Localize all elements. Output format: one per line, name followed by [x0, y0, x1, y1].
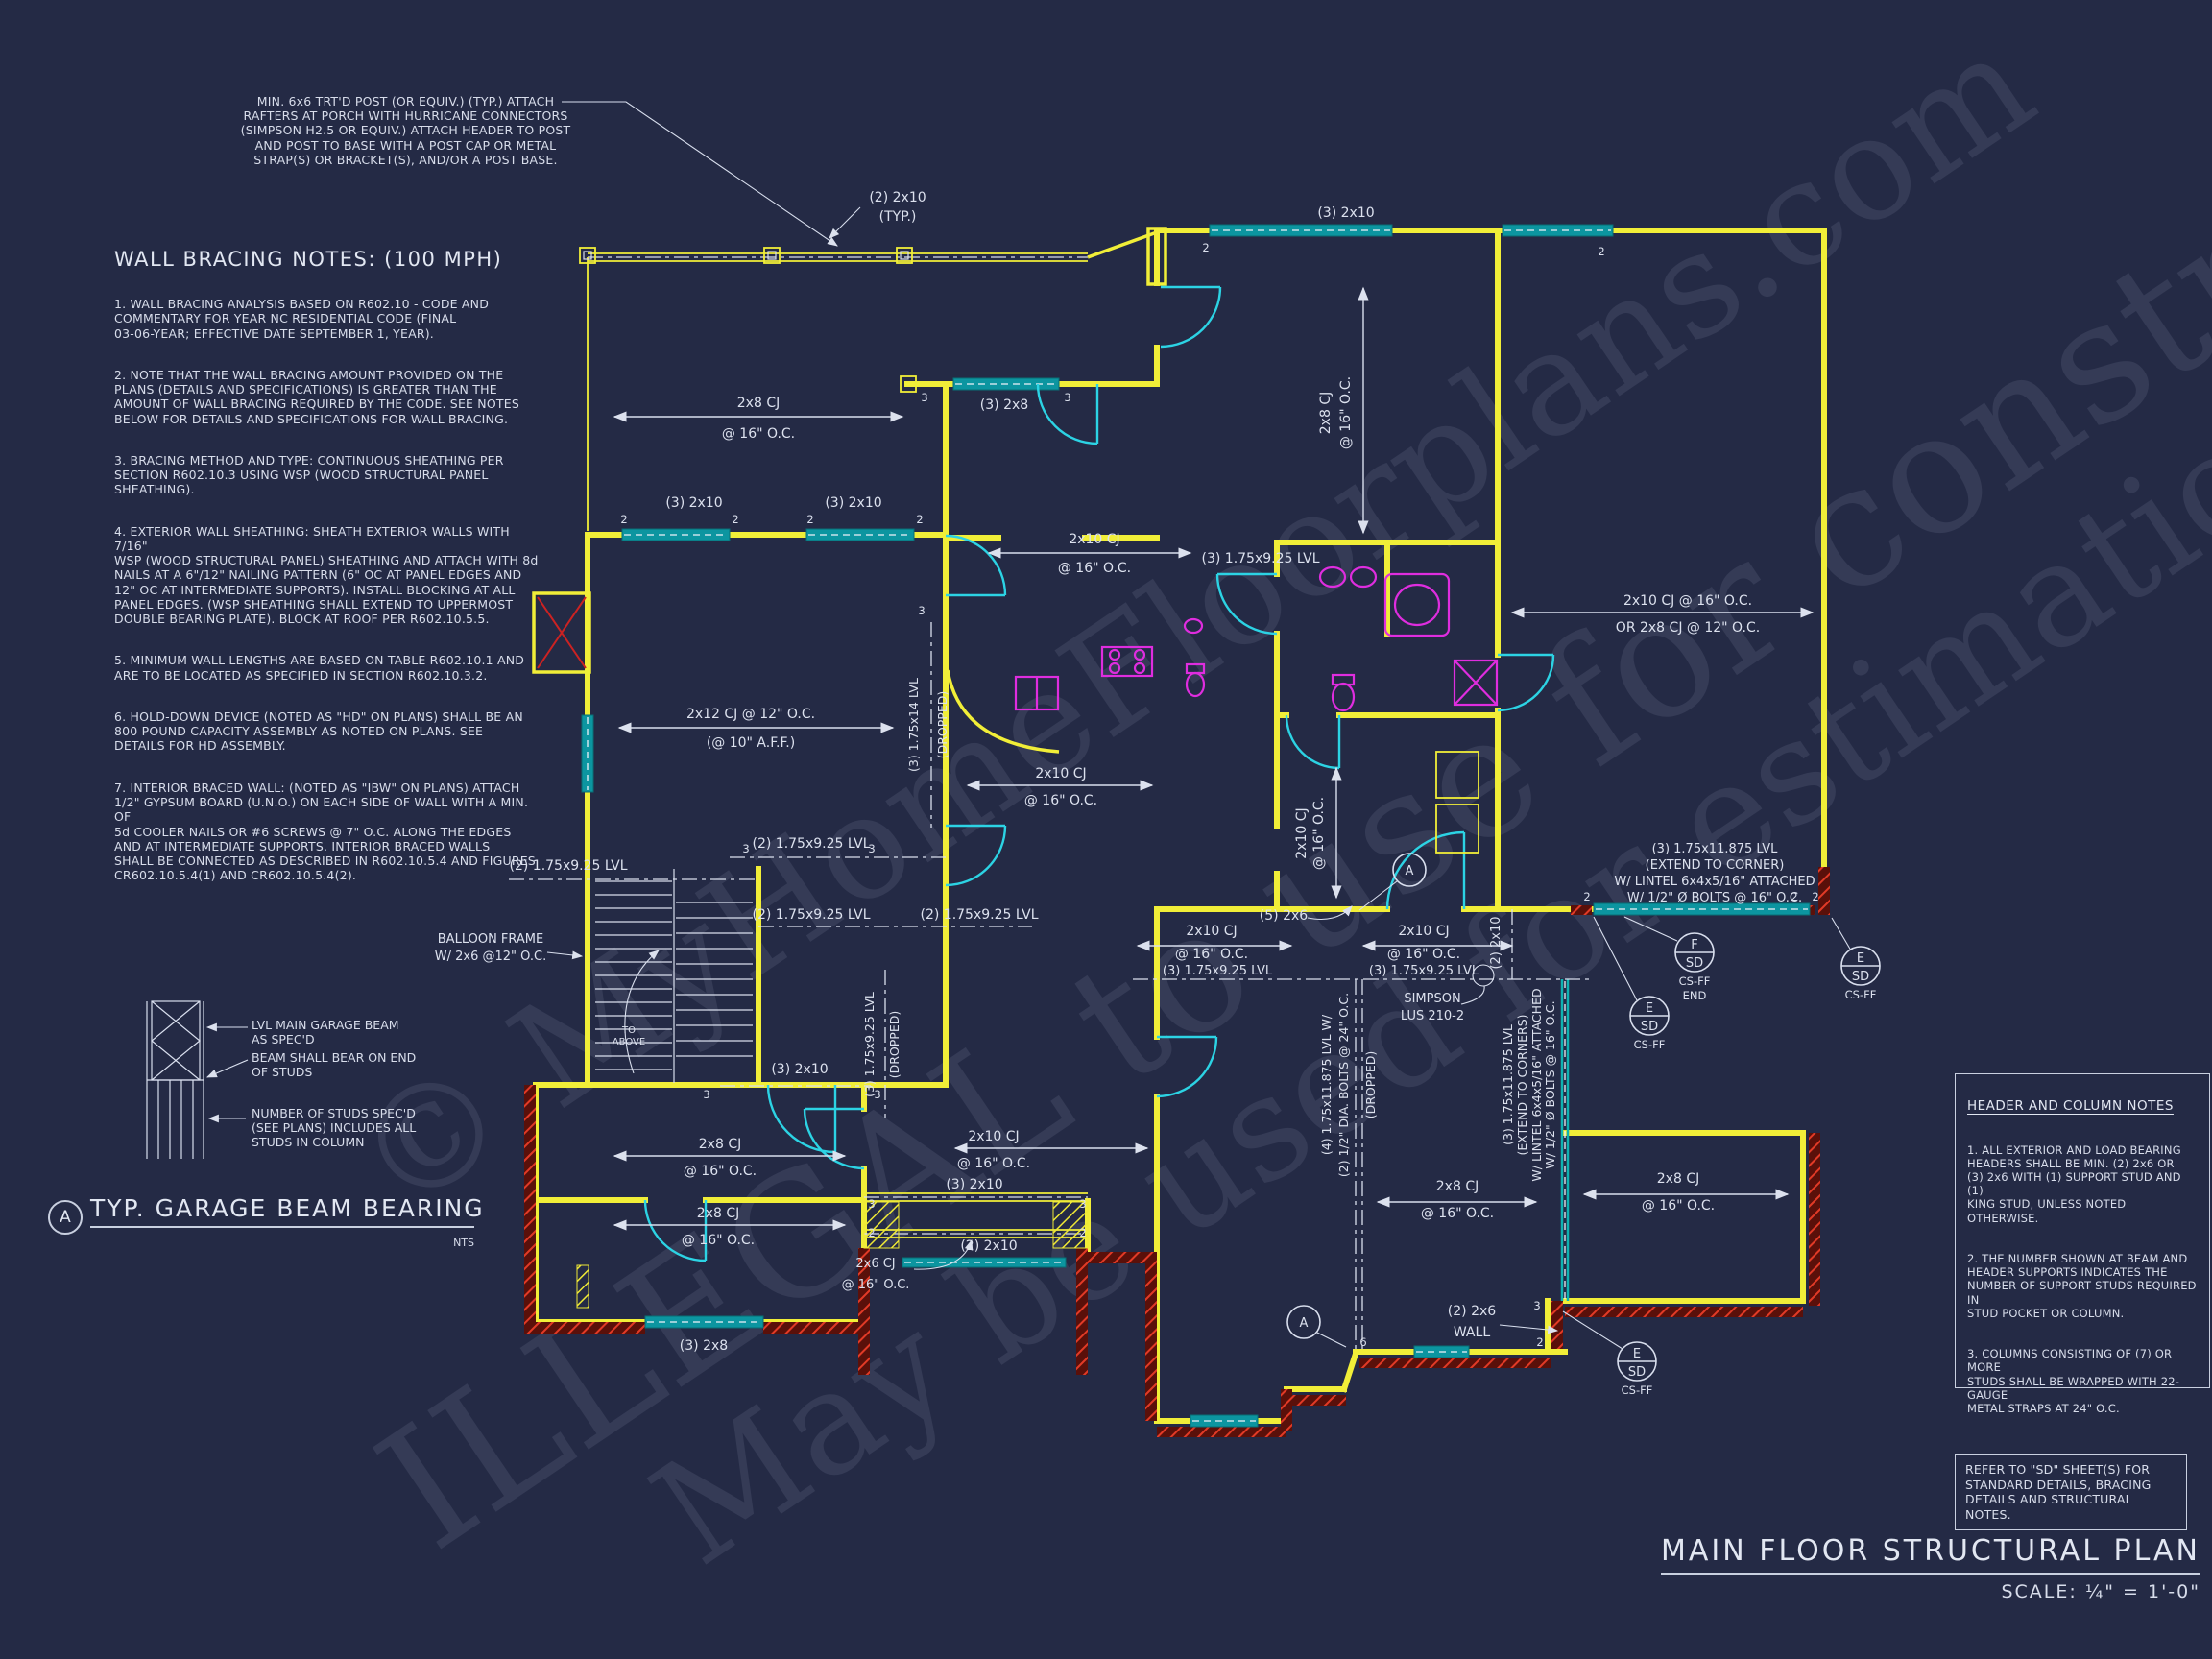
- stud-count: 2: [916, 513, 923, 526]
- plan-label: (2) 2x10: [1489, 916, 1503, 969]
- plan-label: BALLOON FRAME: [438, 932, 543, 947]
- plan-label: W/ LINTEL 6x4x5/16" ATTACHED: [1614, 875, 1815, 889]
- callout-sheet: SD: [1852, 970, 1869, 984]
- plan-label: (2) 1.75x9.25 LVL: [753, 907, 871, 923]
- plan-label: 2x10 CJ: [1398, 924, 1449, 939]
- plan-label: @ 16" O.C.: [1387, 947, 1460, 962]
- callout-letter: E: [1633, 1347, 1641, 1361]
- plan-label: (2) 1/2" DIA. BOLTS @ 24" O.C.: [1336, 993, 1351, 1177]
- callout-sheet: SD: [1686, 956, 1703, 971]
- plan-label: (3) 1.75x9.25 LVL: [862, 992, 877, 1097]
- plan-label: (DROPPED): [1363, 1051, 1378, 1119]
- plan-label: LUS 210-2: [1401, 1009, 1464, 1023]
- plumbing-fixtures: [948, 567, 1497, 853]
- garage-beam-detail-drawing: [147, 1001, 248, 1159]
- plan-label: (3) 1.75x9.25 LVL: [1202, 551, 1320, 566]
- stud-count: 2: [806, 513, 813, 526]
- plan-label: WALL: [1454, 1325, 1490, 1340]
- plan-label: (3) 1.75x9.25 LVL: [1163, 964, 1273, 978]
- plan-label: (3) 2x10: [946, 1177, 1002, 1192]
- callout-sheet: SD: [1628, 1365, 1646, 1380]
- stud-count: 3: [1079, 1197, 1086, 1211]
- plan-label: 2x8 CJ: [699, 1137, 741, 1152]
- stud-count: 3: [1064, 391, 1070, 404]
- plan-label: (3) 1.75x11.875 LVL: [1652, 842, 1779, 856]
- leader-lines: [547, 102, 1851, 1349]
- callout-tag: CS-FF: [1845, 988, 1877, 1001]
- callout-letter: F: [1691, 938, 1697, 952]
- plan-label: @ 16" O.C.: [1338, 376, 1354, 449]
- plan-label: (2) 1.75x9.25 LVL: [921, 907, 1039, 923]
- plan-label: W/ 2x6 @12" O.C.: [435, 950, 546, 964]
- plan-label: (3) 2x8: [980, 397, 1028, 413]
- callout-tag: END: [1683, 989, 1707, 1002]
- stud-count: 3: [874, 1088, 880, 1101]
- plan-label: @ 16" O.C.: [842, 1278, 910, 1292]
- callout-tag: CS-FF: [1634, 1038, 1666, 1051]
- plan-label: (3) 2x8: [680, 1338, 728, 1354]
- plan-label: 2x10 CJ @ 16" O.C.: [1623, 593, 1752, 609]
- stud-count: 3: [1533, 1299, 1540, 1312]
- beam-lines: [509, 622, 1594, 1349]
- callout-letter: A: [1406, 864, 1414, 878]
- stud-count: 3: [921, 391, 927, 404]
- plan-label: (3) 2x10: [771, 1062, 828, 1077]
- stud-count: 2: [732, 513, 738, 526]
- plan-label: 2x10 CJ: [1186, 924, 1237, 939]
- stud-count: 3: [918, 604, 925, 617]
- plan-label: (4) 1.75x11.875 LVL W/: [1319, 1014, 1334, 1155]
- callout-letter: A: [1300, 1316, 1309, 1331]
- plan-label: (2) 2x6: [1448, 1304, 1496, 1319]
- stud-count: 2: [868, 1226, 875, 1239]
- stud-count: 2: [1202, 241, 1209, 254]
- callout-letter: E: [1857, 951, 1864, 966]
- floor-plan-svg: TO ABOVE: [0, 0, 2212, 1659]
- plan-label: 2x8 CJ: [737, 396, 780, 411]
- plan-label: @ 16" O.C.: [682, 1233, 755, 1248]
- plan-label: (2) 1.75x9.25 LVL: [753, 836, 871, 852]
- callout-tag: CS-FF: [1622, 1383, 1653, 1397]
- stud-count: 2: [1079, 1226, 1086, 1239]
- plan-label: (2) 1.75x9.25 LVL: [510, 858, 628, 874]
- stud-count: 3: [703, 1088, 709, 1101]
- stud-count: 2: [1583, 890, 1590, 903]
- stud-count: 3: [868, 842, 875, 855]
- plan-label: @ 16" O.C.: [1024, 793, 1097, 808]
- plan-label: W/ LINTEL 6x4x5/16" ATTACHED: [1529, 988, 1544, 1181]
- plan-label: 2x12 CJ @ 12" O.C.: [686, 707, 815, 722]
- callout-sheet: SD: [1641, 1020, 1658, 1034]
- stud-count-markers: 2 2 2 2 3 3 2 2 2 2 2 3 3 3 3 3 3 3 2 2 …: [620, 241, 1818, 1349]
- stud-count: 2: [1536, 1335, 1543, 1349]
- plan-label: @ 16" O.C.: [722, 426, 795, 442]
- plan-label: 2x8 CJ: [1436, 1179, 1479, 1194]
- plan-label: 2x8 CJ: [697, 1206, 739, 1221]
- plan-label: 2x10 CJ: [1069, 532, 1119, 547]
- stud-count: 2: [1812, 890, 1818, 903]
- plan-label: (EXTEND TO CORNER): [1646, 858, 1785, 873]
- stud-count: 3: [742, 842, 749, 855]
- plan-label: (TYP.): [879, 209, 917, 225]
- plan-label: @ 16" O.C.: [1058, 561, 1131, 576]
- plan-label: (DROPPED): [887, 1011, 902, 1079]
- plan-label: SIMPSON: [1404, 992, 1460, 1006]
- plan-label: 2x10 CJ: [1294, 807, 1310, 858]
- plan-label: @ 16" O.C.: [1421, 1206, 1494, 1221]
- plan-label: @ 16" O.C.: [684, 1164, 757, 1179]
- plan-label: W/ 1/2" Ø BOLTS @ 16" O.C.: [1627, 891, 1802, 905]
- plan-label: (3) 1.75x14 LVL: [906, 678, 921, 772]
- plan-label: (DROPPED): [935, 691, 950, 759]
- plan-label: 2x8 CJ: [1318, 392, 1334, 434]
- plan-labels: (2) 2x10 (TYP.) (3) 2x10 (3) 2x10 (3) 2x…: [435, 190, 1815, 1354]
- plan-label: (2) 2x10: [960, 1238, 1017, 1254]
- plan-label: (3) 1.75x9.25 LVL: [1369, 964, 1479, 978]
- stair-direction-label: ABOVE: [613, 1037, 645, 1047]
- plan-label: @ 16" O.C.: [1175, 947, 1248, 962]
- plan-label: OR 2x8 CJ @ 12" O.C.: [1616, 620, 1760, 636]
- stud-count: 6: [1359, 1335, 1366, 1349]
- plan-label: @ 16" O.C.: [957, 1156, 1030, 1171]
- blueprint-sheet: © MyHomeFloorplans.com ILLEGAL to use fo…: [0, 0, 2212, 1659]
- plan-label: 2x8 CJ: [1657, 1171, 1699, 1187]
- plan-label: (EXTEND TO CORNERS): [1515, 1014, 1529, 1155]
- plan-label: (3) 2x10: [665, 495, 722, 511]
- stairs: TO ABOVE: [595, 869, 753, 1083]
- plan-label: (3) 1.75x11.875 LVL: [1501, 1024, 1515, 1145]
- plan-label: 2x10 CJ: [1035, 766, 1086, 781]
- stud-count: 2: [620, 513, 627, 526]
- plan-label: (2) 2x10: [869, 190, 926, 205]
- plan-label: W/ 1/2" Ø BOLTS @ 16" O.C.: [1543, 1000, 1557, 1168]
- stud-count: 3: [868, 1197, 875, 1211]
- plan-label: @ 16" O.C.: [1311, 797, 1327, 870]
- callout-tag: CS-FF: [1679, 974, 1711, 988]
- plan-label: 2x6 CJ: [855, 1257, 895, 1271]
- callout-letter: E: [1646, 1001, 1653, 1016]
- stud-count: 2: [1598, 245, 1604, 258]
- stair-direction-label: TO: [621, 1025, 636, 1036]
- plan-label: (3) 2x10: [1317, 205, 1374, 221]
- stud-count: 2: [1791, 890, 1797, 903]
- plan-label: 2x10 CJ: [968, 1129, 1019, 1144]
- plan-label: (5) 2x6: [1260, 908, 1308, 924]
- plan-label: (3) 2x10: [825, 495, 881, 511]
- plan-label: @ 16" O.C.: [1642, 1198, 1715, 1214]
- plan-label: (@ 10" A.F.F.): [707, 735, 795, 751]
